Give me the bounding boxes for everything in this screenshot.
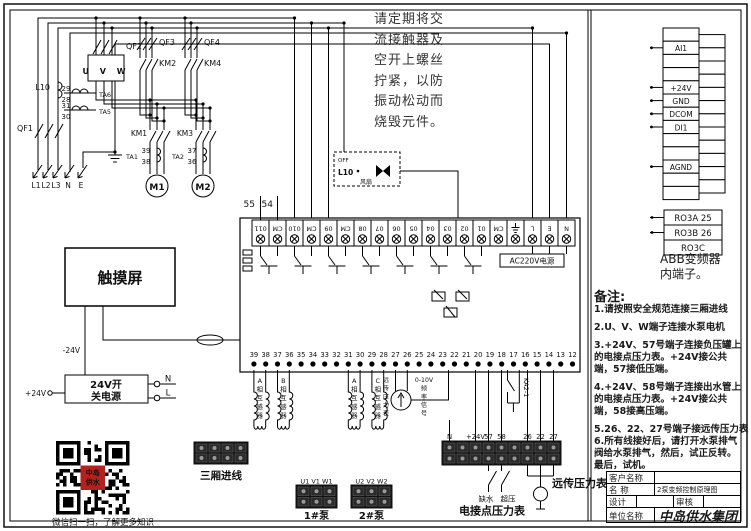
- terminal-dot: [251, 361, 256, 366]
- vertical-label-char: C: [376, 377, 381, 385]
- qr-module: [126, 490, 130, 494]
- minus-24v-label: -24V: [63, 346, 81, 355]
- strip-cell-screw: [200, 446, 204, 450]
- wire-dot: [650, 112, 653, 115]
- terminal-dot: [393, 361, 398, 366]
- vertical-label-char: 器: [280, 411, 287, 419]
- supply-phases: L1L2L3NE: [32, 165, 87, 190]
- strip-cell-screw: [226, 446, 230, 450]
- vertical-label-char: 互: [280, 394, 287, 402]
- qr-module: [119, 480, 123, 484]
- junction-dot: [327, 26, 330, 29]
- qr-module: [123, 480, 127, 484]
- review-value: [704, 496, 741, 508]
- wire-dot: [650, 126, 653, 129]
- strip-cell-screw: [328, 489, 332, 493]
- terminal-label: 01: [477, 225, 485, 233]
- junction-dot: [148, 113, 151, 116]
- terminal-dot: [263, 361, 268, 366]
- abb-cell-right: [699, 101, 725, 114]
- wire-55-label: 55: [244, 200, 255, 210]
- qr-module: [109, 483, 113, 487]
- qr-module: [112, 480, 116, 484]
- vertical-label-char: 相: [351, 385, 358, 394]
- terminal-dot: [546, 361, 551, 366]
- strip-cell-screw: [461, 457, 465, 461]
- frequency-gauge: 远传压力表0-10V频率信号: [383, 370, 449, 418]
- qf4-label: QF4: [204, 38, 220, 47]
- fan-off-label: OFF: [338, 158, 349, 164]
- junction-dot: [310, 21, 313, 24]
- abb-terminal-label: DCOM: [669, 110, 692, 119]
- wire-dot: [650, 46, 653, 49]
- note-item: 6.所有线接好后，请打开水泵排气阀给水泵排气，然后，试正反转。 最后，试机。: [594, 436, 744, 472]
- vertical-label-char: 互: [375, 394, 382, 402]
- phase-label: L1: [32, 181, 41, 190]
- qr-module: [88, 511, 92, 515]
- plc-bottom-terminals: 3938373635343332313029282726252423222120…: [250, 351, 577, 367]
- coil-bottom: [372, 426, 384, 429]
- pump2-header: U2 V2 W2: [355, 478, 387, 486]
- plc-port: [243, 266, 252, 271]
- qr-module: [112, 483, 116, 487]
- junction-dot: [138, 16, 141, 19]
- qr-module: [95, 448, 99, 452]
- strip-cell-screw: [239, 446, 243, 450]
- junction-dot: [194, 113, 197, 116]
- strip-cell-screw: [526, 446, 530, 450]
- terminal-dot: [275, 361, 280, 366]
- terminal-number: 15: [533, 351, 542, 359]
- qr-module: [74, 476, 78, 480]
- qr-module: [84, 511, 88, 515]
- abb-terminal-label: AGND: [670, 163, 692, 172]
- coil-wire: [266, 370, 270, 426]
- qr-module: [91, 508, 95, 512]
- qr-module: [109, 469, 113, 473]
- qr-module: [123, 497, 127, 501]
- qr-module: [98, 497, 102, 501]
- fan-switch-label: L10: [338, 168, 353, 177]
- vertical-label-char: 相: [375, 385, 382, 394]
- junction-dot: [531, 26, 534, 29]
- abb-cell: [663, 134, 699, 147]
- ta2-terminal-a: 37: [188, 147, 197, 155]
- strip-cell-screw: [383, 500, 387, 504]
- vertical-label-char: 压: [383, 394, 389, 401]
- abb-cell-right: [699, 87, 725, 100]
- qr-module: [70, 480, 74, 484]
- qf3-label: QF3: [159, 38, 175, 47]
- relay-contact: [329, 246, 346, 274]
- psu-n-terminal: [154, 381, 160, 387]
- low-water-switch-label: 缺水: [479, 494, 494, 504]
- terminal-dot: [381, 361, 386, 366]
- overpressure-switch-label: 超压: [501, 495, 516, 504]
- qr-module: [63, 480, 67, 484]
- name-label: 名 称: [607, 484, 655, 496]
- design-label: 设计: [607, 496, 637, 508]
- abb-cell: [663, 147, 699, 160]
- qr-module: [63, 476, 67, 480]
- junction-dot: [110, 26, 113, 29]
- gauge-strip-label: 22: [536, 433, 545, 441]
- vertical-label-char: 率: [421, 393, 427, 401]
- junction-dot: [155, 102, 158, 105]
- strip-cell-screw: [513, 457, 517, 461]
- qr-module: [70, 473, 74, 477]
- coil-bottom: [278, 426, 290, 429]
- qr-module: [109, 504, 113, 508]
- qr-module: [116, 476, 120, 480]
- vertical-label-char: 力: [383, 401, 389, 409]
- terminal-dot: [476, 361, 481, 366]
- pump2-caption: 2#泵: [359, 510, 385, 522]
- qr-module: [88, 497, 92, 501]
- qr-module: [112, 473, 116, 477]
- psu-n-label: N: [165, 375, 171, 385]
- junction-dot: [194, 98, 197, 101]
- phase-label: E: [79, 181, 84, 190]
- abb-cell-right: [699, 153, 725, 166]
- abb-cell-right: [699, 35, 725, 48]
- terminal-dot: [310, 361, 315, 366]
- note-item: 3.+24V、57号端子连接负压罐上的电接点压力表。+24V接公共端，57接低压…: [594, 340, 744, 376]
- qr-module: [77, 469, 81, 473]
- qr-logo-text: 中岛: [86, 468, 100, 477]
- qr-module: [88, 441, 92, 445]
- terminal-number: 28: [379, 351, 388, 359]
- vertical-label-char: 感: [375, 402, 382, 411]
- qr-module: [98, 508, 102, 512]
- vertical-label-char: 互: [257, 394, 264, 402]
- qr-module: [60, 480, 64, 484]
- ta5-terminal-b: 30: [62, 113, 71, 121]
- vertical-label-char: 互: [351, 394, 358, 402]
- terminal-number: 27: [391, 351, 400, 359]
- gauge-strip-label: 58: [497, 433, 506, 441]
- qr-module: [123, 494, 127, 498]
- strip-cell-screw: [213, 446, 217, 450]
- junction-dot: [155, 116, 158, 119]
- terminal-label: CM: [306, 225, 316, 233]
- strip-cell-screw: [357, 500, 361, 504]
- gauge-terminal-strip: [442, 441, 562, 466]
- motor-m1-label: M1: [149, 183, 164, 193]
- junction-dot: [183, 16, 186, 19]
- qr-module: [63, 469, 67, 473]
- abb-cell-right: [699, 48, 725, 61]
- ct-coil: A相互感器: [254, 370, 269, 429]
- abb-cell: [663, 68, 699, 81]
- coil-bottom: [254, 426, 266, 429]
- terminal-dot: [499, 361, 504, 366]
- junction-dot: [208, 119, 211, 122]
- vertical-label-char: A: [258, 377, 263, 385]
- terminal-dot: [369, 361, 374, 366]
- schematic-page: QF1 QF2 QF3 QF4 KM2 KM4 KM1 KM3 L10 U V …: [0, 0, 751, 531]
- relay-contact: [397, 246, 414, 274]
- strip-cell-screw: [213, 456, 217, 460]
- vertical-label-char: B: [281, 377, 285, 385]
- terminal-label: 010: [288, 225, 300, 233]
- vertical-label-char: 号: [421, 411, 427, 418]
- qr-module: [116, 511, 120, 515]
- gauge-strip-label: 57: [484, 433, 493, 441]
- terminal-dot: [452, 361, 457, 366]
- terminal-dot: [346, 361, 351, 366]
- qr-module: [84, 504, 88, 508]
- terminal-dot: [428, 361, 433, 366]
- vertical-label-char: 远: [383, 376, 389, 384]
- qr-module: [123, 511, 127, 515]
- strip-cell-screw: [500, 446, 504, 450]
- qr-finder: [63, 497, 74, 508]
- vertical-label-char: 传: [383, 384, 389, 392]
- terminal-number: 14: [545, 351, 554, 359]
- terminal-dot: [299, 361, 304, 366]
- terminal-number: 38: [261, 351, 270, 359]
- strip-cell-screw: [539, 446, 543, 450]
- junction-dot: [189, 21, 192, 24]
- terminal-dot: [440, 361, 445, 366]
- ac-power-label: AC220V电源: [510, 256, 555, 266]
- terminal-label: 07: [375, 225, 383, 233]
- terminal-label: E: [547, 225, 551, 233]
- abb-block-caption: ABB变频器 内端子。: [660, 252, 721, 282]
- km1-label: KM1: [131, 129, 147, 138]
- plus-24v-label: +24V: [25, 389, 47, 398]
- terminal-label: 02: [460, 225, 468, 233]
- junction-dot: [148, 98, 151, 101]
- psu-label-line1: 24V开: [90, 379, 122, 391]
- abb-cell-right: [699, 127, 725, 140]
- qr-module: [56, 476, 60, 480]
- qr-module: [91, 490, 95, 494]
- vfd-letters: U V W: [82, 67, 129, 76]
- qr-module: [95, 494, 99, 498]
- coil-wire: [360, 370, 364, 426]
- qr-module: [126, 508, 130, 512]
- terminal-number: 32: [332, 351, 341, 359]
- relay-contact: [431, 246, 448, 274]
- terminal-number: 26: [403, 351, 412, 359]
- terminal-dot: [523, 361, 528, 366]
- terminal-number: 16: [521, 351, 530, 359]
- review-label: 审核: [674, 496, 704, 508]
- terminal-number: 17: [509, 351, 518, 359]
- strip-cell-screw: [474, 446, 478, 450]
- km2-label: KM2: [159, 59, 176, 68]
- maintenance-warning-note: 请定期将交 流接触器及 空开上螺丝 拧紧，以防 振动松动而 烧毁元件。: [374, 10, 484, 133]
- customer-value: [655, 472, 741, 484]
- phase-label: L2: [42, 181, 51, 190]
- terminal-number: 31: [344, 351, 353, 359]
- wire-dot: [651, 231, 654, 234]
- strip-cell-screw: [315, 500, 319, 504]
- qr-module: [105, 473, 109, 477]
- terminal-number: 36: [285, 351, 294, 359]
- strip-cell-screw: [487, 446, 491, 450]
- qr-module: [60, 469, 64, 473]
- qr-finder: [112, 448, 123, 459]
- abb-cell-right: [699, 114, 725, 127]
- psu-label-line2: 关电源: [91, 390, 121, 403]
- vertical-label-char: 器: [351, 411, 358, 419]
- vertical-label-char: 相: [257, 385, 264, 394]
- junction-dot: [162, 106, 165, 109]
- qr-module: [88, 459, 92, 463]
- qr-module: [95, 501, 99, 505]
- qr-module: [98, 448, 102, 452]
- qr-module: [116, 473, 120, 477]
- relay-contact: [295, 246, 312, 274]
- vertical-label-char: A: [352, 377, 357, 385]
- terminal-dot: [535, 361, 540, 366]
- remote-gauge-caption: 远传压力表: [552, 476, 608, 490]
- note-item: 5.26、22、27号端子接远传压力表: [594, 424, 744, 436]
- qr-module: [116, 494, 120, 498]
- qr-module: [102, 490, 106, 494]
- qr-module: [119, 494, 123, 498]
- junction-dot: [208, 106, 211, 109]
- qr-caption: 微信扫一扫，了解更多知识: [52, 517, 154, 528]
- wire-dot: [651, 216, 654, 219]
- plc-port: [243, 250, 252, 255]
- remote-pressure-transmitter: [534, 487, 548, 501]
- relay-contact: [363, 246, 380, 274]
- wire-dot: [650, 165, 653, 168]
- abb-terminal-label: +24V: [671, 84, 693, 93]
- vertical-label-char: 表: [383, 410, 389, 418]
- vertical-label-char: 感: [351, 402, 358, 411]
- qr-module: [119, 508, 123, 512]
- terminal-dot: [464, 361, 469, 366]
- qr-module: [84, 448, 88, 452]
- km3-label: KM3: [177, 129, 193, 138]
- column-divider: [588, 10, 591, 521]
- phase-label: N: [65, 181, 71, 190]
- ta2-terminal-b: 36: [188, 158, 197, 166]
- qr-module: [126, 511, 130, 515]
- qr-module: [116, 497, 120, 501]
- terminal-number: 34: [309, 351, 318, 359]
- terminal-dot: [511, 361, 516, 366]
- junction-dot: [293, 16, 296, 19]
- junction-dot: [162, 119, 165, 122]
- qr-module: [84, 501, 88, 505]
- vertical-label-char: 器: [257, 411, 264, 419]
- strip-cell-screw: [315, 489, 319, 493]
- terminal-label: 03: [443, 225, 451, 233]
- ta1-label: TA1: [125, 153, 138, 161]
- ta2-label: TA2: [171, 153, 184, 161]
- km4-label: KM4: [204, 59, 221, 68]
- junction-dot: [94, 16, 97, 19]
- terminal-number: 22: [450, 351, 459, 359]
- qr-module: [116, 487, 120, 491]
- terminal-label: 09: [324, 225, 332, 233]
- junction-dot: [102, 21, 105, 24]
- terminal-number: 33: [320, 351, 329, 359]
- terminal-dot: [417, 361, 422, 366]
- qr-module: [102, 501, 106, 505]
- gauge-strip-label: N: [447, 433, 452, 441]
- plc-port: [243, 258, 252, 263]
- ta5-terminal-a: 31: [62, 102, 71, 110]
- reactor-label: L10: [35, 83, 50, 92]
- ka-relay-contact: [508, 370, 520, 412]
- strip-cell-screw: [448, 446, 452, 450]
- qr-module: [70, 476, 74, 480]
- vertical-label-char: 感: [280, 402, 287, 411]
- qr-module: [95, 445, 99, 449]
- strip-cell-screw: [539, 457, 543, 461]
- terminal-number: 23: [438, 351, 447, 359]
- qr-module: [123, 476, 127, 480]
- terminal-number: 20: [474, 351, 483, 359]
- pump1-terminal-strip: [296, 485, 338, 509]
- qr-module: [67, 469, 71, 473]
- qf2-label: QF2: [126, 42, 142, 51]
- qr-module: [112, 494, 116, 498]
- abb-cell-right: [699, 180, 725, 193]
- terminal-dot: [334, 361, 339, 366]
- terminal-label: 05: [409, 225, 417, 233]
- abb-cell: [663, 54, 699, 67]
- abb-cell: [663, 28, 699, 41]
- terminal-label: 011: [254, 225, 266, 233]
- psu-l-label: L: [166, 389, 171, 399]
- junction-dot: [201, 102, 204, 105]
- qr-module: [109, 494, 113, 498]
- qr-module: [116, 508, 120, 512]
- vertical-label-char: 信: [421, 401, 427, 409]
- qf1-label: QF1: [17, 124, 33, 133]
- qr-module: [88, 501, 92, 505]
- terminal-dot: [570, 361, 575, 366]
- junction-dot: [113, 150, 116, 153]
- gauge-strip-label: +24V: [466, 433, 485, 441]
- strip-cell-screw: [357, 489, 361, 493]
- strip-cell-screw: [500, 457, 504, 461]
- vertical-label-char: 0-10V: [415, 377, 434, 384]
- qr-module: [119, 504, 123, 508]
- gauge-strip-label: 26: [523, 433, 532, 441]
- strip-cell-screw: [200, 456, 204, 460]
- strip-cell-screw: [302, 489, 306, 493]
- terminal-label: CM: [272, 225, 282, 233]
- terminal-number: 39: [250, 351, 259, 359]
- terminal-number: 21: [462, 351, 471, 359]
- strip-cell-screw: [226, 456, 230, 460]
- qr-module: [91, 511, 95, 515]
- abb-terminal-block: AI1+24VGNDDCOMDI1AGNDRO3A 25RO3B 26RO3C: [650, 28, 725, 255]
- ta1-terminal-b: 38: [142, 158, 151, 166]
- coil-bottom: [348, 426, 360, 429]
- abb-cell-right: [699, 61, 725, 74]
- customer-label: 客户名称: [607, 472, 655, 484]
- qr-module: [95, 497, 99, 501]
- coil-wire: [289, 370, 293, 426]
- title-block: 客户名称 名 称 2泵变频控制原理图 设计 审核 单位名称 中岛供水集团: [606, 471, 741, 523]
- qr-module: [119, 469, 123, 473]
- abb-relay-label: RO3B 26: [674, 229, 711, 239]
- terminal-number: 19: [486, 351, 495, 359]
- ta1-terminal-a: 39: [142, 147, 151, 155]
- ka-relay-label: KA2-1: [522, 378, 530, 397]
- terminal-number: 24: [427, 351, 436, 359]
